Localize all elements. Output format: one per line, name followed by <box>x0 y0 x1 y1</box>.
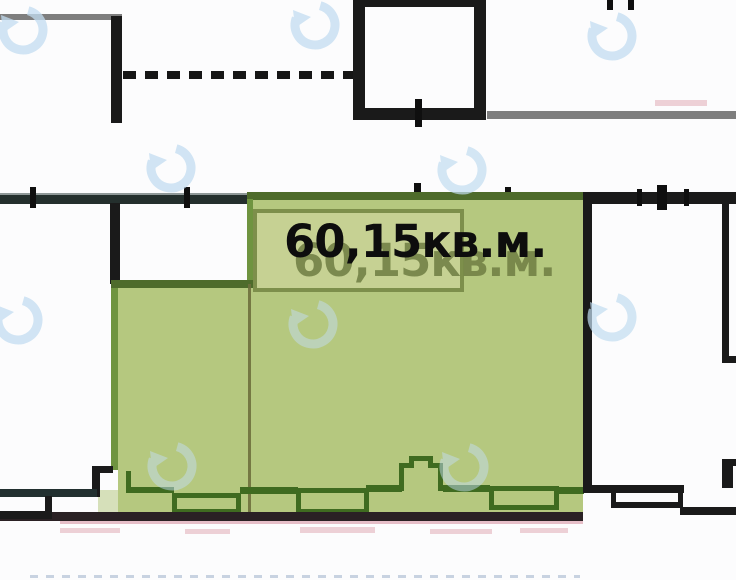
faint-red-marking-4 <box>430 529 492 534</box>
faint-red-marking-top-right <box>655 100 707 106</box>
highlight-area-lower-left <box>118 288 247 514</box>
window-connector-2 <box>366 485 402 492</box>
right-room-bottom-wall <box>587 485 684 493</box>
area-label: 60,15кв.м. <box>284 219 546 264</box>
window-sill-left-horizontal <box>126 487 174 493</box>
bottom-right-outer-wall <box>680 507 736 515</box>
room-top-wall-top <box>353 0 486 7</box>
bottom-outer-wall <box>0 512 583 521</box>
watermark-logo-icon <box>0 2 51 58</box>
wall-top-left-gray <box>0 14 122 20</box>
watermark-logo-icon <box>0 292 46 348</box>
faint-red-marking-1 <box>60 528 120 533</box>
wall-tick-7 <box>684 189 689 206</box>
main-wall-left-segment <box>0 193 248 204</box>
faint-red-marking-5 <box>520 528 568 533</box>
faint-dashed-line-bottom <box>30 575 580 578</box>
window-connector-4 <box>556 487 584 494</box>
room-divider-line <box>248 284 251 515</box>
window-bottom-left-connector <box>45 496 52 519</box>
highlight-top-border <box>247 192 583 200</box>
room-top-wall-right <box>474 0 486 120</box>
wall-tick-2 <box>184 187 190 208</box>
wall-tick-top-edge-1 <box>607 0 613 10</box>
room-top-wall-left <box>353 0 365 120</box>
window-connector-1 <box>240 487 298 494</box>
right-room-window-sill <box>613 502 683 508</box>
wall-tick-room-bottom <box>415 99 422 127</box>
window-connector-3 <box>443 485 490 492</box>
wall-step-horizontal <box>92 466 113 473</box>
window-symbol-3 <box>489 486 559 510</box>
watermark-logo-icon <box>287 0 343 53</box>
right-room-right-wall-upper <box>722 204 729 362</box>
right-room-left-wall <box>583 193 592 493</box>
right-room-right-wall-corner <box>722 356 736 363</box>
wall-tick-6 <box>657 185 667 210</box>
floor-plan-canvas: 60,15кв.м. 60,15кв.м. <box>0 0 736 580</box>
watermark-logo-icon <box>434 142 490 198</box>
wall-top-right-gray <box>487 111 736 119</box>
watermark-logo-icon <box>584 8 640 64</box>
window-symbol-2 <box>296 488 369 514</box>
wall-tick-5 <box>637 189 642 206</box>
highlight-left-edge <box>111 288 118 470</box>
faint-red-marking-2 <box>185 529 230 534</box>
wall-tick-top-edge-2 <box>628 0 634 10</box>
wall-tick-1 <box>30 187 36 208</box>
watermark-logo-icon <box>584 289 640 345</box>
watermark-logo-icon <box>143 140 199 196</box>
wall-left-mid-vertical <box>110 203 120 284</box>
window-symbol-1 <box>172 493 241 514</box>
wall-top-left-vertical <box>111 16 122 123</box>
wall-dashed-partition <box>123 71 353 79</box>
right-room-right-wall-lower-v <box>722 459 733 488</box>
bottom-wall-pink-tint <box>60 521 583 524</box>
faint-red-marking-3 <box>300 527 375 533</box>
